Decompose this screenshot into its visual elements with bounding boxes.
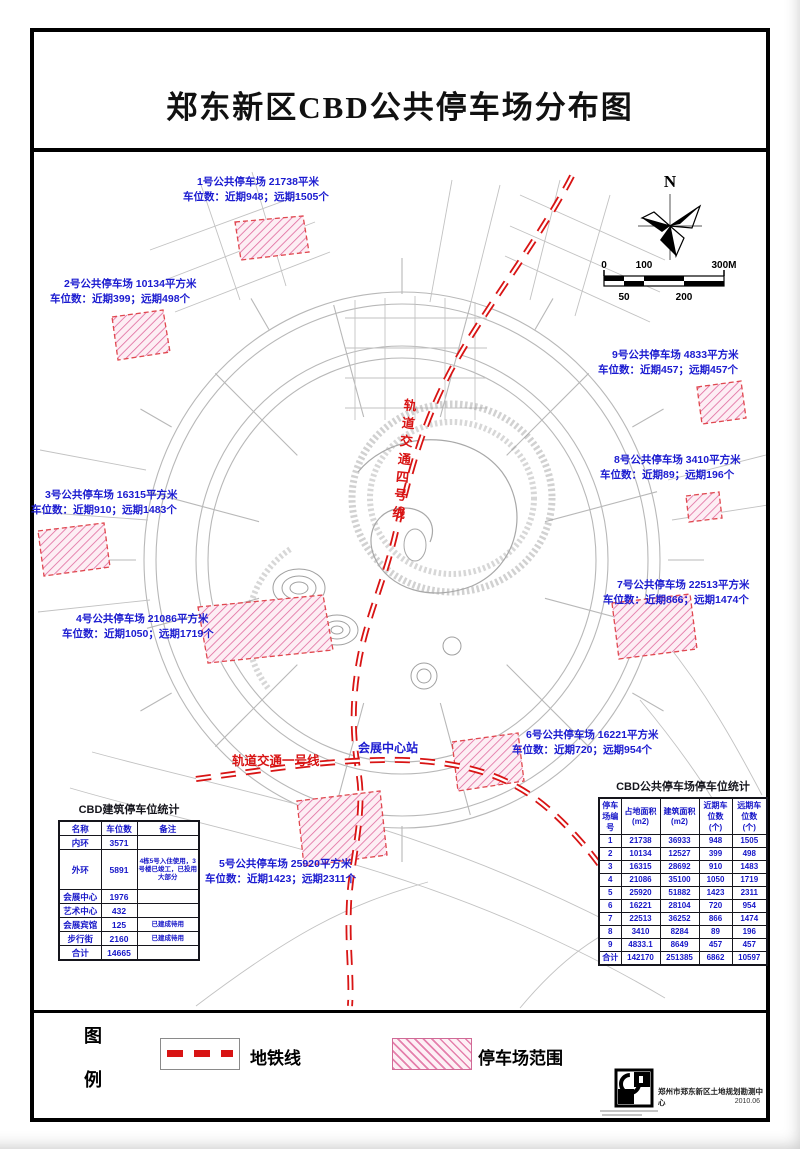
header-cell: 占地面积 (m2) xyxy=(621,798,660,834)
cell: 25920 xyxy=(621,886,660,899)
cell: 12527 xyxy=(660,847,699,860)
cell: 948 xyxy=(699,834,732,847)
compass-rose-icon xyxy=(628,192,712,264)
table-row: 内环 3571 xyxy=(59,836,199,850)
cell: 6862 xyxy=(699,951,732,965)
cell: 3 xyxy=(599,860,621,873)
table-total-row: 合计142170251385686210597 xyxy=(599,951,767,965)
parking-name: 6号公共停车场 16221平方米 xyxy=(526,728,658,743)
cell: 8284 xyxy=(660,925,699,938)
scale-tick-300: 300M xyxy=(711,260,736,271)
parking-label-7: 7号公共停车场 22513平方米 车位数：近期866；远期1474个 xyxy=(603,578,749,607)
cell: 35100 xyxy=(660,873,699,886)
cell: 28692 xyxy=(660,860,699,873)
table-header-row: 停车场编号 占地面积 (m2) 建筑面积 (m2) 近期车位数 (个) 远期车位… xyxy=(599,798,767,834)
parking-label-9: 9号公共停车场 4833平方米 车位数：近期457；远期457个 xyxy=(598,348,739,377)
parking-spots: 车位数：近期457；远期457个 xyxy=(598,363,739,378)
parking-name: 9号公共停车场 4833平方米 xyxy=(612,348,739,363)
cell: 10597 xyxy=(732,951,767,965)
cell: 1719 xyxy=(732,873,767,886)
cell: 954 xyxy=(732,899,767,912)
cell: 8 xyxy=(599,925,621,938)
header-cell: 名称 xyxy=(59,821,101,836)
cell: 196 xyxy=(732,925,767,938)
header-cell: 停车场编号 xyxy=(599,798,621,834)
parking-label-8: 8号公共停车场 3410平方米 车位数：近期89；远期196个 xyxy=(600,453,741,482)
logo-microtext xyxy=(602,1114,642,1116)
parking-label-4: 4号公共停车场 21086平方米 车位数：近期1050；远期1719个 xyxy=(62,612,214,641)
building-table: 名称 车位数 备注 内环 3571 外环 5891 4栋5号入住使用，3号楼已竣… xyxy=(58,820,200,961)
header-cell: 建筑面积 (m2) xyxy=(660,798,699,834)
cell: 16221 xyxy=(621,899,660,912)
cell: 会展中心 xyxy=(59,890,101,904)
parking-spots: 车位数：近期399；远期498个 xyxy=(50,292,196,307)
cell: 1474 xyxy=(732,912,767,925)
legend-title-char-1: 图 xyxy=(84,1022,102,1048)
table-row: 会展中心 1976 xyxy=(59,890,199,904)
north-arrow: N xyxy=(628,172,712,264)
parking-spots: 车位数：近期866；远期1474个 xyxy=(603,593,749,608)
cell: 2 xyxy=(599,847,621,860)
cell xyxy=(137,890,199,904)
cell: 外环 xyxy=(59,850,101,890)
parking-label-6: 6号公共停车场 16221平方米 车位数：近期720；远期954个 xyxy=(512,728,658,757)
cell: 22513 xyxy=(621,912,660,925)
scale-bar: 0 100 300M 50 200 xyxy=(596,258,736,302)
cell: 89 xyxy=(699,925,732,938)
station-label: 会展中心站 xyxy=(358,739,418,756)
page-title: 郑东新区CBD公共停车场分布图 xyxy=(30,82,770,127)
cell: 1505 xyxy=(732,834,767,847)
table-header-row: 名称 车位数 备注 xyxy=(59,821,199,836)
cell: 16315 xyxy=(621,860,660,873)
parking-name: 1号公共停车场 21738平米 xyxy=(197,175,329,190)
cell: 21738 xyxy=(621,834,660,847)
header-cell: 远期车位数 (个) xyxy=(732,798,767,834)
cell: 720 xyxy=(699,899,732,912)
parking-label-2: 2号公共停车场 10134平方米 车位数：近期399；远期498个 xyxy=(50,277,196,306)
cell: 已建成待用 xyxy=(137,932,199,946)
cell: 5 xyxy=(599,886,621,899)
cell: 已建成待用 xyxy=(137,918,199,932)
parking-spots: 车位数：近期910；远期1483个 xyxy=(31,503,177,518)
cell: 498 xyxy=(732,847,767,860)
cell: 142170 xyxy=(621,951,660,965)
table-row: 722513362528661474 xyxy=(599,912,767,925)
cell: 1050 xyxy=(699,873,732,886)
cell: 4栋5号入住使用，3号楼已竣工，已投用大部分 xyxy=(137,850,199,890)
cell: 7 xyxy=(599,912,621,925)
scale-tick-50: 50 xyxy=(618,292,630,302)
map-sheet: 郑东新区CBD公共停车场分布图 1号公共停车场 21738平米 车位数：近期94… xyxy=(0,0,800,1149)
header-cell: 车位数 xyxy=(101,821,137,836)
parking-spots: 车位数：近期1050；远期1719个 xyxy=(62,627,214,642)
cell: 1976 xyxy=(101,890,137,904)
header-cell: 近期车位数 (个) xyxy=(699,798,732,834)
scale-tick-200: 200 xyxy=(676,292,693,302)
parking-name: 3号公共停车场 16315平方米 xyxy=(45,488,177,503)
cell: 432 xyxy=(101,904,137,918)
cell: 4833.1 xyxy=(621,938,660,951)
legend-parking-label: 停车场范围 xyxy=(478,1044,563,1069)
cell: 9 xyxy=(599,938,621,951)
table-row: 5259205188214232311 xyxy=(599,886,767,899)
building-table-title: CBD建筑停车位统计 xyxy=(58,801,200,817)
cell: 会展宾馆 xyxy=(59,918,101,932)
cell: 1 xyxy=(599,834,621,847)
parking-spots: 车位数：近期948；远期1505个 xyxy=(183,190,329,205)
scale-tick-0: 0 xyxy=(601,260,607,271)
cell: 21086 xyxy=(621,873,660,886)
table-row: 316315286929101483 xyxy=(599,860,767,873)
cell: 1423 xyxy=(699,886,732,899)
cell: 125 xyxy=(101,918,137,932)
parking-label-5: 5号公共停车场 25920平方米 车位数：近期1423；远期2311个 xyxy=(205,857,356,886)
parking-table-title: CBD公共停车场停车位统计 xyxy=(598,778,768,794)
cell: 8649 xyxy=(660,938,699,951)
cell: 866 xyxy=(699,912,732,925)
cell: 36933 xyxy=(660,834,699,847)
cell: 14665 xyxy=(101,946,137,961)
logo-microtext xyxy=(600,1110,658,1112)
cell: 399 xyxy=(699,847,732,860)
cell: 1483 xyxy=(732,860,767,873)
cell: 10134 xyxy=(621,847,660,860)
cell: 3410 xyxy=(621,925,660,938)
parking-range-symbol xyxy=(392,1038,472,1070)
cell xyxy=(137,946,199,961)
cell: 步行街 xyxy=(59,932,101,946)
cell xyxy=(137,836,199,850)
parking-name: 2号公共停车场 10134平方米 xyxy=(64,277,196,292)
agency-logo-icon xyxy=(614,1068,654,1108)
table-row: 61622128104720954 xyxy=(599,899,767,912)
footer-date: 2010.06 xyxy=(700,1098,760,1105)
cell: 28104 xyxy=(660,899,699,912)
table-row: 21013412527399498 xyxy=(599,847,767,860)
metro-line1-label: 轨道交通一号线 xyxy=(232,750,320,769)
parking-name: 8号公共停车场 3410平方米 xyxy=(614,453,741,468)
table-row: 合计 14665 xyxy=(59,946,199,961)
cell xyxy=(137,904,199,918)
parking-name: 5号公共停车场 25920平方米 xyxy=(219,857,356,872)
legend-title-char-2: 例 xyxy=(84,1066,102,1092)
title-separator xyxy=(30,148,770,152)
cell: 51882 xyxy=(660,886,699,899)
table-row: 121738369339481505 xyxy=(599,834,767,847)
table-row: 艺术中心 432 xyxy=(59,904,199,918)
cell: 3571 xyxy=(101,836,137,850)
cell: 内环 xyxy=(59,836,101,850)
cell: 457 xyxy=(732,938,767,951)
table-row: 94833.18649457457 xyxy=(599,938,767,951)
cell: 457 xyxy=(699,938,732,951)
cell: 36252 xyxy=(660,912,699,925)
parking-spots: 车位数：近期1423；远期2311个 xyxy=(205,872,356,887)
table-row: 83410828489196 xyxy=(599,925,767,938)
table-row: 步行街 2160 已建成待用 xyxy=(59,932,199,946)
cell: 2160 xyxy=(101,932,137,946)
parking-spots: 车位数：近期89；远期196个 xyxy=(600,468,741,483)
red-dash-icon xyxy=(167,1050,233,1057)
parking-label-3: 3号公共停车场 16315平方米 车位数：近期910；远期1483个 xyxy=(31,488,177,517)
cell: 合计 xyxy=(599,951,621,965)
cell: 6 xyxy=(599,899,621,912)
cell: 4 xyxy=(599,873,621,886)
cell: 艺术中心 xyxy=(59,904,101,918)
parking-name: 4号公共停车场 21086平方米 xyxy=(76,612,214,627)
legend-metro-label: 地铁线 xyxy=(250,1044,301,1069)
legend-separator xyxy=(30,1010,770,1013)
cell: 5891 xyxy=(101,850,137,890)
parking-spots: 车位数：近期720；远期954个 xyxy=(512,743,658,758)
parking-table: 停车场编号 占地面积 (m2) 建筑面积 (m2) 近期车位数 (个) 远期车位… xyxy=(598,797,768,966)
parking-name: 7号公共停车场 22513平方米 xyxy=(617,578,749,593)
parking-label-1: 1号公共停车场 21738平米 车位数：近期948；远期1505个 xyxy=(183,175,329,204)
north-letter: N xyxy=(628,172,712,192)
cell: 2311 xyxy=(732,886,767,899)
table-row: 会展宾馆 125 已建成待用 xyxy=(59,918,199,932)
metro-line-symbol xyxy=(160,1038,240,1070)
table-row: 4210863510010501719 xyxy=(599,873,767,886)
cell: 910 xyxy=(699,860,732,873)
cell: 合计 xyxy=(59,946,101,961)
scale-tick-100: 100 xyxy=(636,260,653,271)
cell: 251385 xyxy=(660,951,699,965)
table-row: 外环 5891 4栋5号入住使用，3号楼已竣工，已投用大部分 xyxy=(59,850,199,890)
header-cell: 备注 xyxy=(137,821,199,836)
